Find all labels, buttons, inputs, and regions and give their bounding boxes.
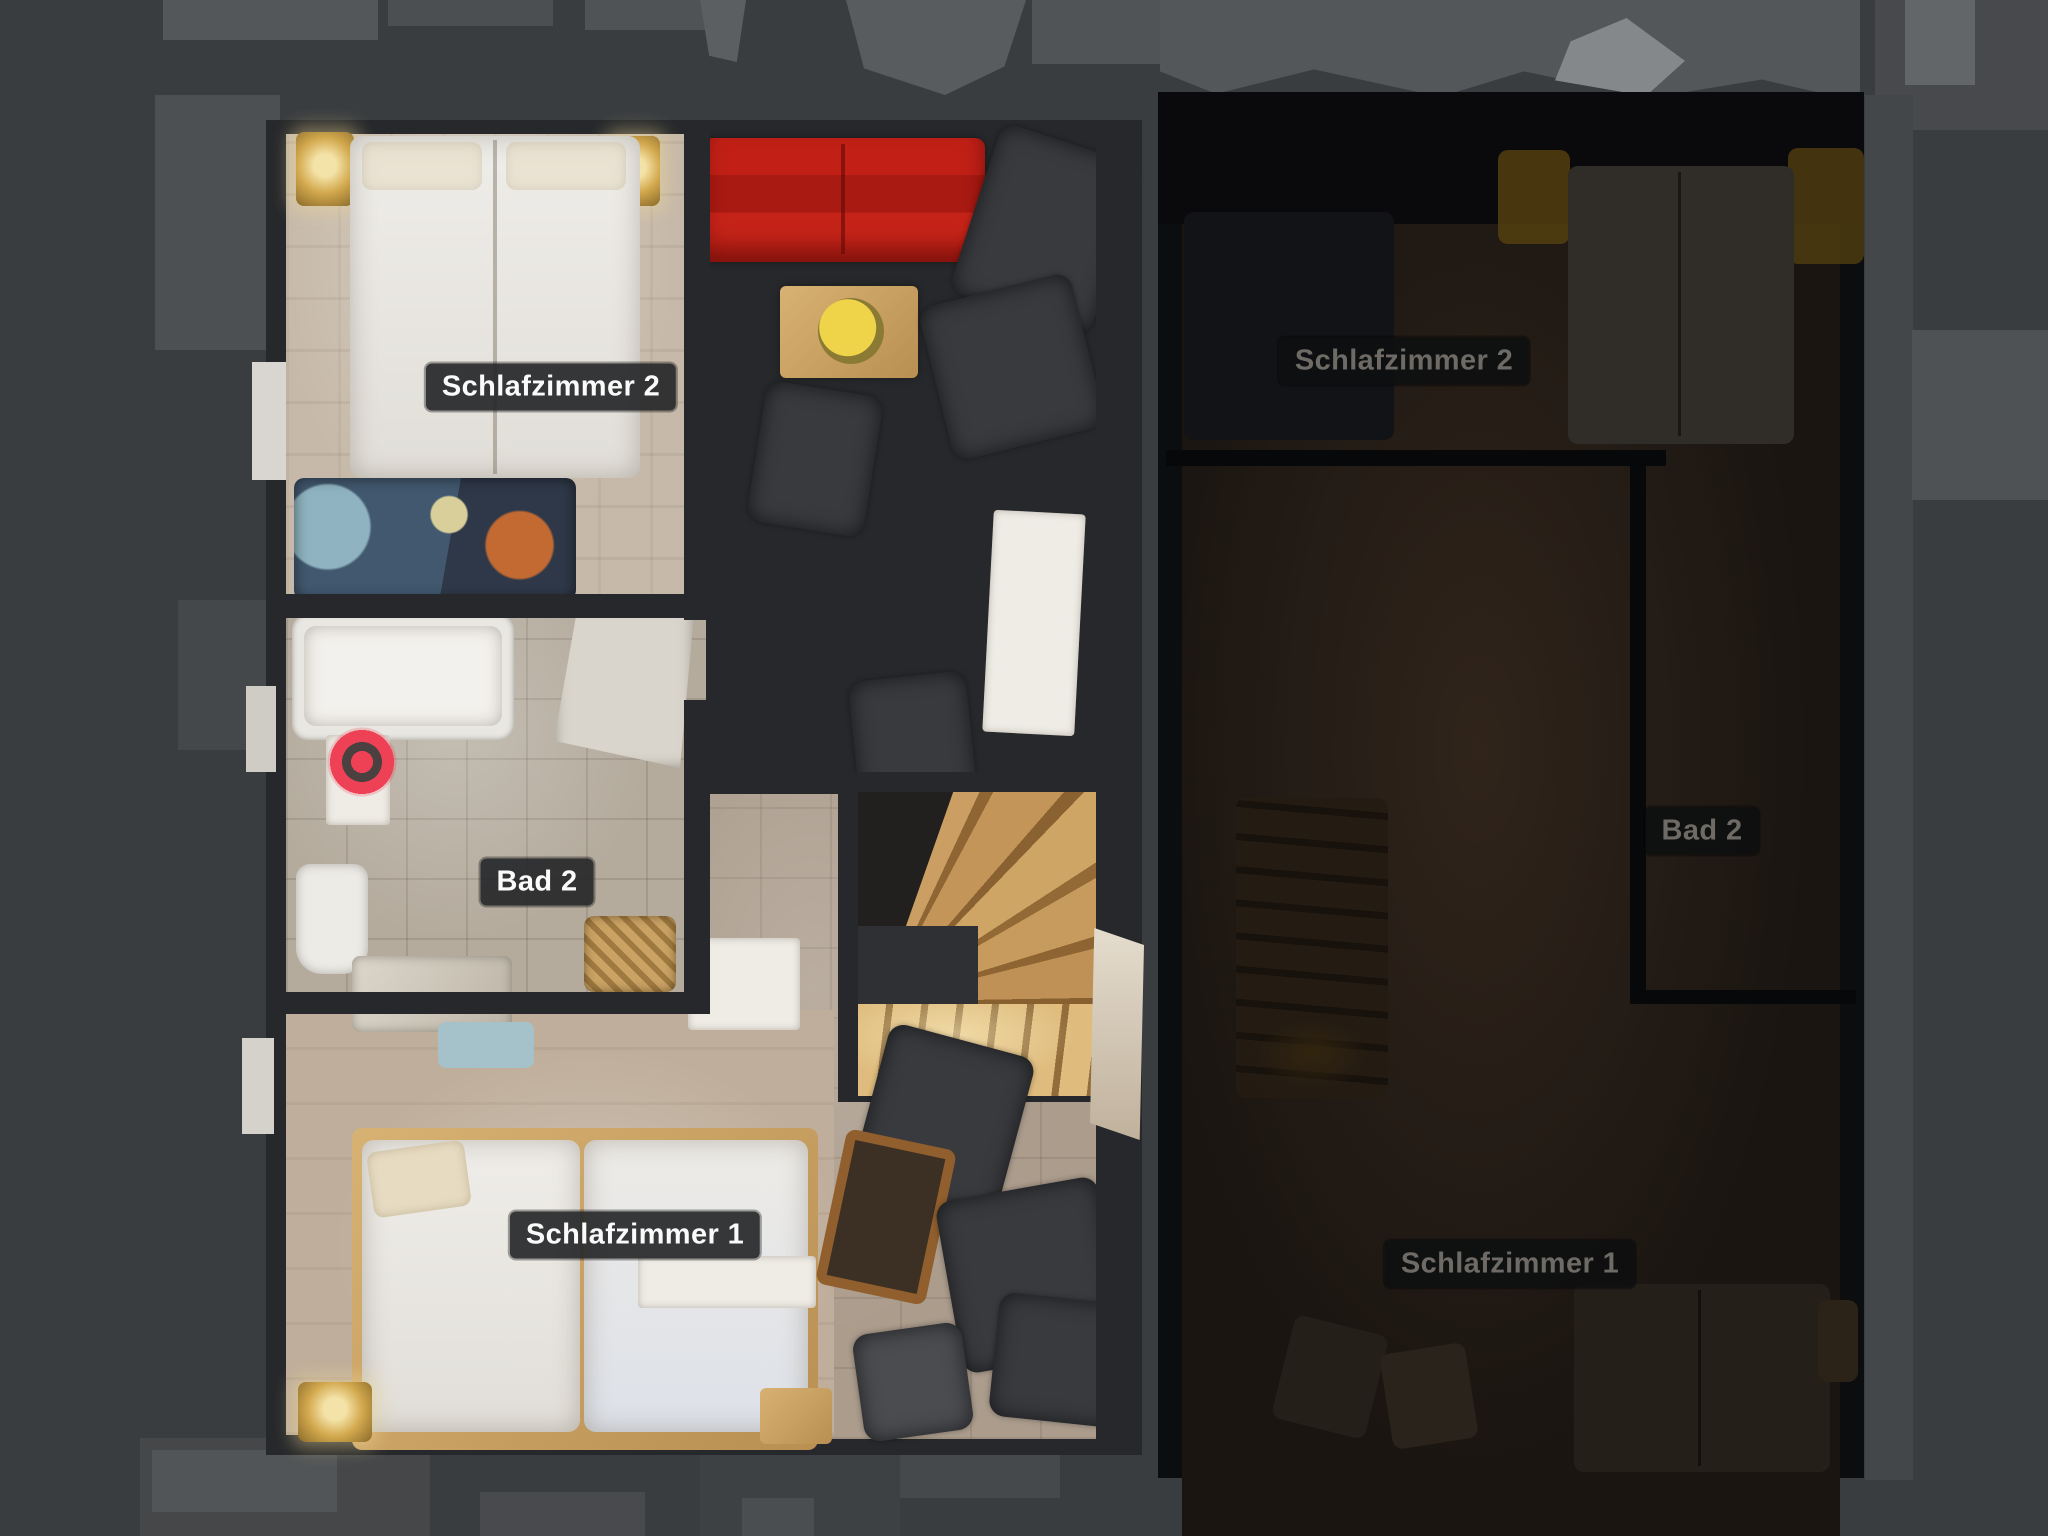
- scan-artifact: [1865, 95, 1913, 1480]
- room-label-schlafzimmer-1: Schlafzimmer 1: [510, 1212, 760, 1259]
- stair-landing: [858, 926, 978, 1004]
- wall: [266, 992, 706, 1014]
- dim-sofa: [1184, 212, 1394, 440]
- dim-headboard: [1498, 150, 1570, 244]
- scan-artifact: [388, 0, 553, 26]
- dim-nightstand: [1818, 1300, 1858, 1382]
- dim-armchair: [1379, 1342, 1479, 1450]
- bowl: [818, 298, 884, 364]
- scan-artifact: [155, 95, 280, 350]
- scan-artifact: [480, 1492, 645, 1536]
- scan-artifact: [1090, 928, 1144, 1140]
- dim-bed: [1568, 166, 1794, 444]
- wall: [684, 700, 710, 1014]
- room-label-bad-2: Bad 2: [481, 859, 594, 906]
- dim-bed-seam: [1678, 172, 1681, 436]
- bed-seam: [493, 140, 497, 474]
- floorplan-canvas: Schlafzimmer 2 Bad 2 Schlafzimmer 1: [0, 0, 2048, 1536]
- scan-artifact: [846, 0, 1026, 95]
- shelf: [638, 1256, 816, 1308]
- scan-artifact: [700, 0, 746, 62]
- door-frame: [242, 1038, 274, 1134]
- door-frame: [252, 362, 286, 480]
- dim-bed: [1574, 1284, 1830, 1472]
- dim-stair-glow: [1256, 1018, 1368, 1090]
- pillow: [366, 1140, 472, 1219]
- sofa-seam: [841, 144, 845, 254]
- dim-wall: [1630, 466, 1646, 996]
- scan-artifact: [152, 1450, 337, 1512]
- dim-wall: [1166, 450, 1666, 466]
- pillow: [506, 142, 626, 190]
- scan-artifact: [1032, 0, 1172, 64]
- room-label-schlafzimmer-1: Schlafzimmer 1: [1385, 1241, 1635, 1288]
- current-position-marker: [327, 727, 397, 797]
- dim-wall: [1630, 990, 1856, 1004]
- wall: [1096, 120, 1142, 1455]
- scan-artifact: [1094, 472, 1142, 716]
- rug: [294, 478, 576, 600]
- nightstand-lamp: [298, 1382, 372, 1442]
- room-label-bad-2: Bad 2: [1646, 808, 1759, 855]
- scan-artifact: [900, 1448, 1060, 1498]
- pillow: [362, 142, 482, 190]
- scan-artifact: [1160, 0, 1860, 102]
- wall: [266, 594, 706, 618]
- bench-blue: [438, 1022, 534, 1068]
- nightstand: [760, 1388, 832, 1444]
- shower: [554, 598, 694, 768]
- wall: [684, 120, 710, 620]
- floor-plan-inactive[interactable]: Schlafzimmer 2 Bad 2 Schlafzimmer 1: [1158, 92, 1864, 1478]
- console-table: [982, 510, 1085, 737]
- laundry-basket: [584, 916, 676, 992]
- scan-artifact: [742, 1498, 814, 1536]
- dim-bed-seam: [1698, 1290, 1701, 1466]
- dim-headboard: [1788, 148, 1864, 264]
- room-label-schlafzimmer-2: Schlafzimmer 2: [426, 364, 676, 411]
- floor-plan-active[interactable]: Schlafzimmer 2 Bad 2 Schlafzimmer 1: [266, 120, 1142, 1455]
- door-frame: [246, 686, 276, 772]
- bathtub-inner: [304, 626, 502, 726]
- armchair: [851, 1321, 975, 1443]
- scan-artifact: [163, 0, 378, 40]
- scan-artifact: [1912, 330, 2048, 500]
- nightstand-lamp: [296, 132, 354, 206]
- scan-artifact: [1905, 0, 1975, 85]
- armchair: [746, 380, 885, 539]
- room-label-schlafzimmer-2: Schlafzimmer 2: [1279, 338, 1529, 385]
